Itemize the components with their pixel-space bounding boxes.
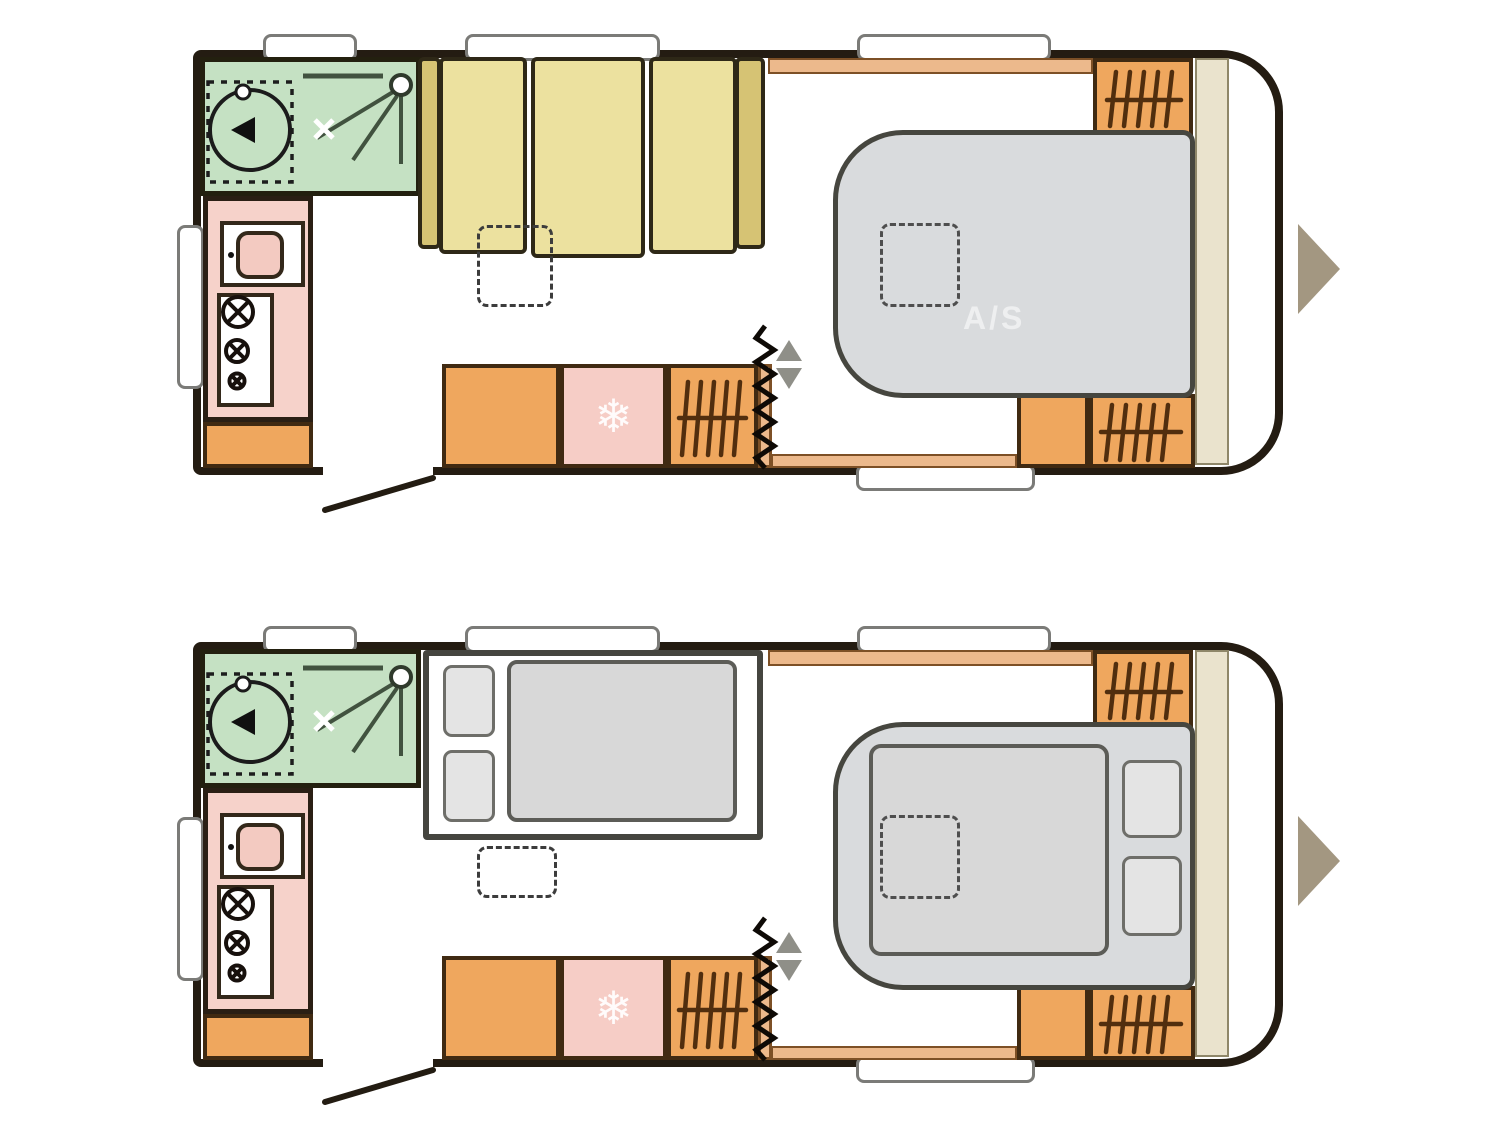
front-shelf [1195, 650, 1229, 1057]
fridge: ❄ [560, 364, 667, 468]
door-swing-line [325, 478, 433, 510]
partition [758, 956, 772, 1060]
mattress [507, 660, 737, 822]
dinette-backrest [418, 57, 441, 249]
tap-icon [228, 252, 234, 258]
window [857, 626, 1051, 653]
cabinet [1017, 394, 1089, 468]
cabinet [442, 364, 560, 468]
skylight-dashed [880, 223, 960, 307]
table-dashed [477, 846, 557, 898]
shower-head-icon [391, 667, 411, 687]
window [857, 34, 1051, 61]
overhead-shelf [768, 58, 1093, 74]
snowflake-icon: ❄ [594, 985, 633, 1031]
cabinet [1017, 986, 1089, 1060]
table-dashed [477, 225, 553, 307]
door-swing-line [325, 1070, 433, 1102]
pillow [1122, 760, 1182, 838]
dinette-seat [649, 57, 737, 254]
toilet-cistern-icon [236, 677, 250, 691]
overhead-shelf [768, 650, 1093, 666]
snowflake-icon: ❄ [594, 393, 633, 439]
entrance-door-gap [323, 459, 433, 475]
skylight-dashed [880, 815, 960, 899]
wardrobe [1093, 58, 1193, 138]
front-shelf [1195, 58, 1229, 465]
hob-counter [217, 293, 274, 407]
entrance-door-gap [323, 1051, 433, 1067]
sink-counter [220, 813, 305, 879]
bed-base-edge [771, 454, 1017, 468]
bed-base-edge [771, 1046, 1017, 1060]
shower-head-icon [391, 75, 411, 95]
dinette-backrest [735, 57, 765, 249]
hob-counter [217, 885, 274, 999]
bathroom [200, 57, 421, 196]
window [177, 225, 204, 389]
window [177, 817, 204, 981]
sink-icon [236, 231, 284, 279]
wardrobe [1089, 394, 1195, 468]
bathroom-symbols [205, 62, 416, 191]
toilet-cistern-icon [236, 85, 250, 99]
window [856, 1056, 1035, 1083]
pillow [443, 750, 495, 822]
pillow [443, 665, 495, 737]
floorplan-day: ❄ A/S [193, 50, 1283, 475]
cabinet [203, 422, 313, 468]
pillow [1122, 856, 1182, 936]
wardrobe [667, 364, 758, 468]
shower-spray-icon [353, 96, 397, 160]
partition [758, 364, 772, 468]
tap-icon [228, 844, 234, 850]
direction-arrow-icon [1298, 816, 1340, 906]
wardrobe [1089, 986, 1195, 1060]
fridge: ❄ [560, 956, 667, 1060]
sink-icon [236, 823, 284, 871]
bathroom [200, 649, 421, 788]
window [465, 626, 660, 653]
kitchen-unit [203, 196, 313, 422]
sink-counter [220, 221, 305, 287]
floorplan-canvas: ❄ A/S [0, 0, 1500, 1123]
window [856, 464, 1035, 491]
wardrobe [667, 956, 758, 1060]
floorplan-night: mpin ❄ [193, 642, 1283, 1067]
cabinet [442, 956, 560, 1060]
wardrobe [1093, 650, 1193, 730]
cabinet: mpin [203, 1014, 313, 1060]
kitchen-unit [203, 788, 313, 1014]
bathroom-symbols [205, 654, 416, 783]
direction-arrow-icon [1298, 224, 1340, 314]
shower-spray-icon [353, 688, 397, 752]
